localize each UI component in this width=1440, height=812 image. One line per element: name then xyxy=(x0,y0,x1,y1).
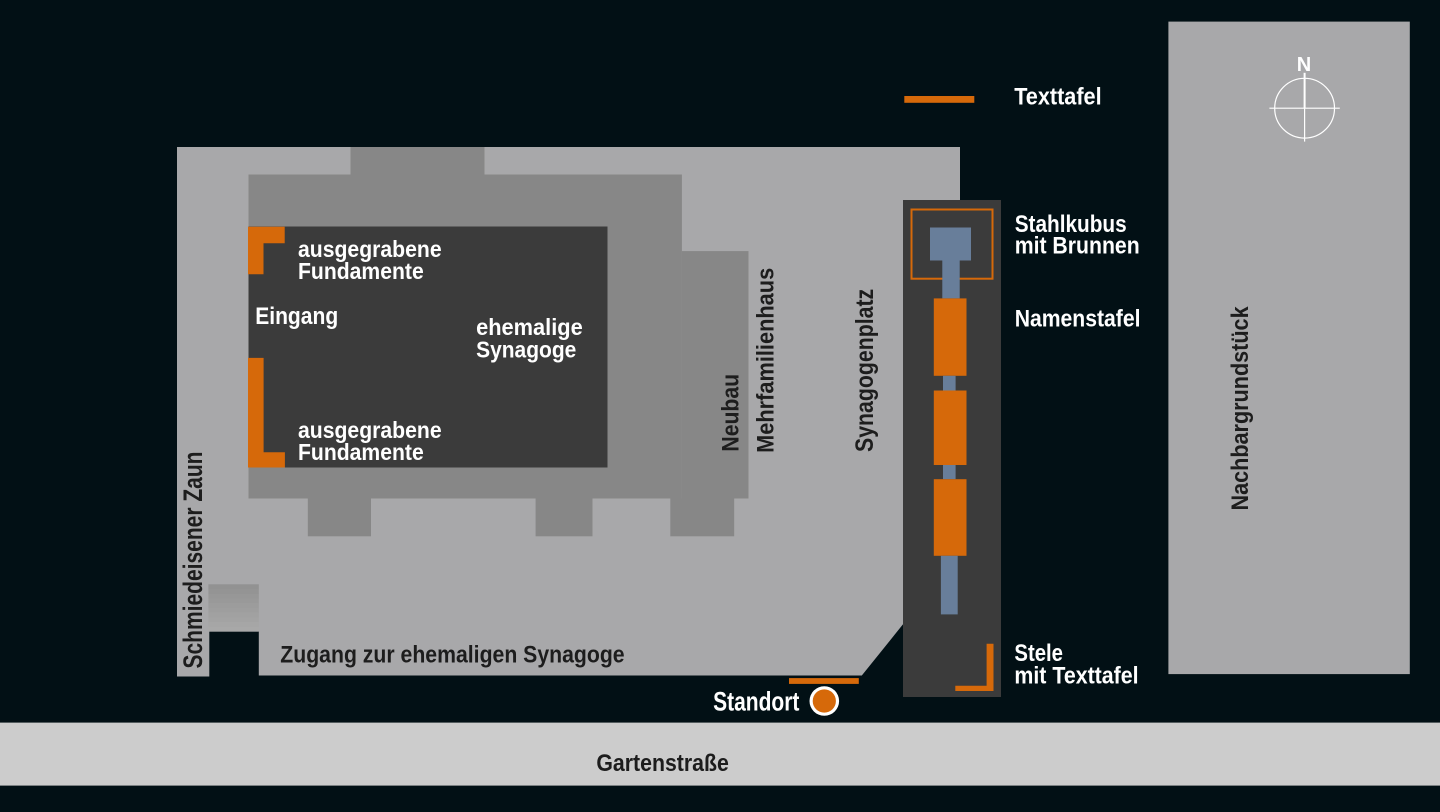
svg-text:Neubau: Neubau xyxy=(718,374,745,452)
svg-text:Synagoge: Synagoge xyxy=(476,336,576,362)
svg-text:Gartenstraße: Gartenstraße xyxy=(596,750,728,777)
svg-text:mit Texttafel: mit Texttafel xyxy=(1014,663,1138,690)
svg-text:Standort: Standort xyxy=(713,687,799,717)
svg-text:Nachbargrundstück: Nachbargrundstück xyxy=(1227,306,1254,511)
svg-text:Fundamente: Fundamente xyxy=(298,439,424,465)
svg-text:Eingang: Eingang xyxy=(255,303,338,330)
svg-text:Fundamente: Fundamente xyxy=(298,258,424,284)
svg-text:Synagogenplatz: Synagogenplatz xyxy=(851,289,879,452)
svg-text:Texttafel: Texttafel xyxy=(1014,83,1101,110)
svg-text:mit Brunnen: mit Brunnen xyxy=(1015,232,1140,259)
svg-text:Zugang zur ehemaligen Synagoge: Zugang zur ehemaligen Synagoge xyxy=(280,642,624,669)
svg-text:N: N xyxy=(1297,54,1311,76)
svg-text:Mehrfamilienhaus: Mehrfamilienhaus xyxy=(752,268,779,453)
svg-text:Schmiedeisener Zaun: Schmiedeisener Zaun xyxy=(178,452,208,669)
svg-text:Namenstafel: Namenstafel xyxy=(1015,306,1141,333)
